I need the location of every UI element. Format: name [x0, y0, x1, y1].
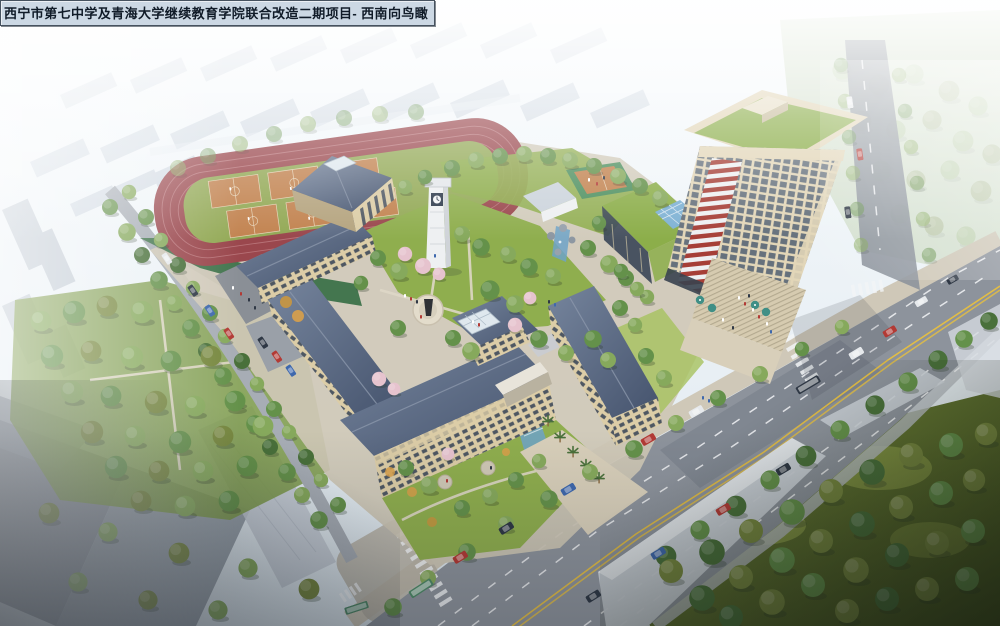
project-title: 西宁市第七中学及青海大学继续教育学院联合改造二期项目- 西南向鸟瞰: [4, 6, 428, 21]
vignette-bottom-left: [0, 380, 400, 626]
statue-plaza: [413, 295, 443, 325]
aerial-rendering: [0, 0, 1000, 626]
haze-overlay-topright: [820, 60, 1000, 280]
title-bar: 西宁市第七中学及青海大学继续教育学院联合改造二期项目- 西南向鸟瞰: [0, 0, 435, 26]
rendering-page: 西宁市第七中学及青海大学继续教育学院联合改造二期项目- 西南向鸟瞰: [0, 0, 1000, 626]
vignette-bottom-right: [600, 360, 1000, 626]
